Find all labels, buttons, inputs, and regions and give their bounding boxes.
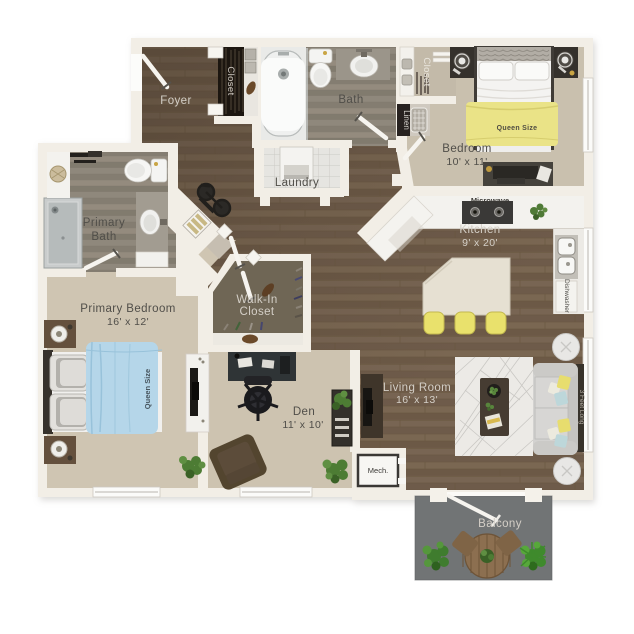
svg-text:Dishwasher: Dishwasher (563, 279, 570, 314)
svg-text:Laundry: Laundry (275, 177, 319, 189)
svg-text:Closet: Closet (421, 57, 432, 86)
svg-text:Foyer: Foyer (160, 95, 191, 107)
svg-text:16' x 12': 16' x 12' (107, 316, 149, 328)
svg-text:Bedroom: Bedroom (442, 143, 491, 155)
svg-text:Queen Size: Queen Size (497, 125, 538, 132)
svg-text:Bath: Bath (91, 231, 116, 243)
svg-text:Linen: Linen (402, 110, 411, 130)
svg-text:Kitchen: Kitchen (459, 224, 500, 236)
svg-text:Balcony: Balcony (478, 518, 522, 530)
svg-text:Den: Den (293, 406, 315, 418)
svg-text:Closet: Closet (240, 306, 275, 318)
svg-text:Primary: Primary (83, 217, 125, 229)
svg-text:Microwave: Microwave (471, 196, 509, 205)
svg-text:Bath: Bath (338, 94, 363, 106)
svg-text:9' x 20': 9' x 20' (462, 237, 498, 249)
svg-text:Walk-In: Walk-In (236, 294, 277, 306)
svg-text:Mech.: Mech. (368, 466, 388, 475)
svg-text:Living Room: Living Room (383, 382, 451, 394)
svg-text:16' x 13': 16' x 13' (396, 394, 438, 406)
svg-text:11' x 10': 11' x 10' (282, 419, 323, 431)
svg-text:3 Feet Long: 3 Feet Long (578, 390, 585, 425)
svg-text:Closet: Closet (225, 66, 236, 95)
svg-text:Primary Bedroom: Primary Bedroom (80, 303, 175, 315)
svg-text:Queen Size: Queen Size (143, 369, 152, 409)
svg-text:10' x 11': 10' x 11' (446, 156, 487, 168)
